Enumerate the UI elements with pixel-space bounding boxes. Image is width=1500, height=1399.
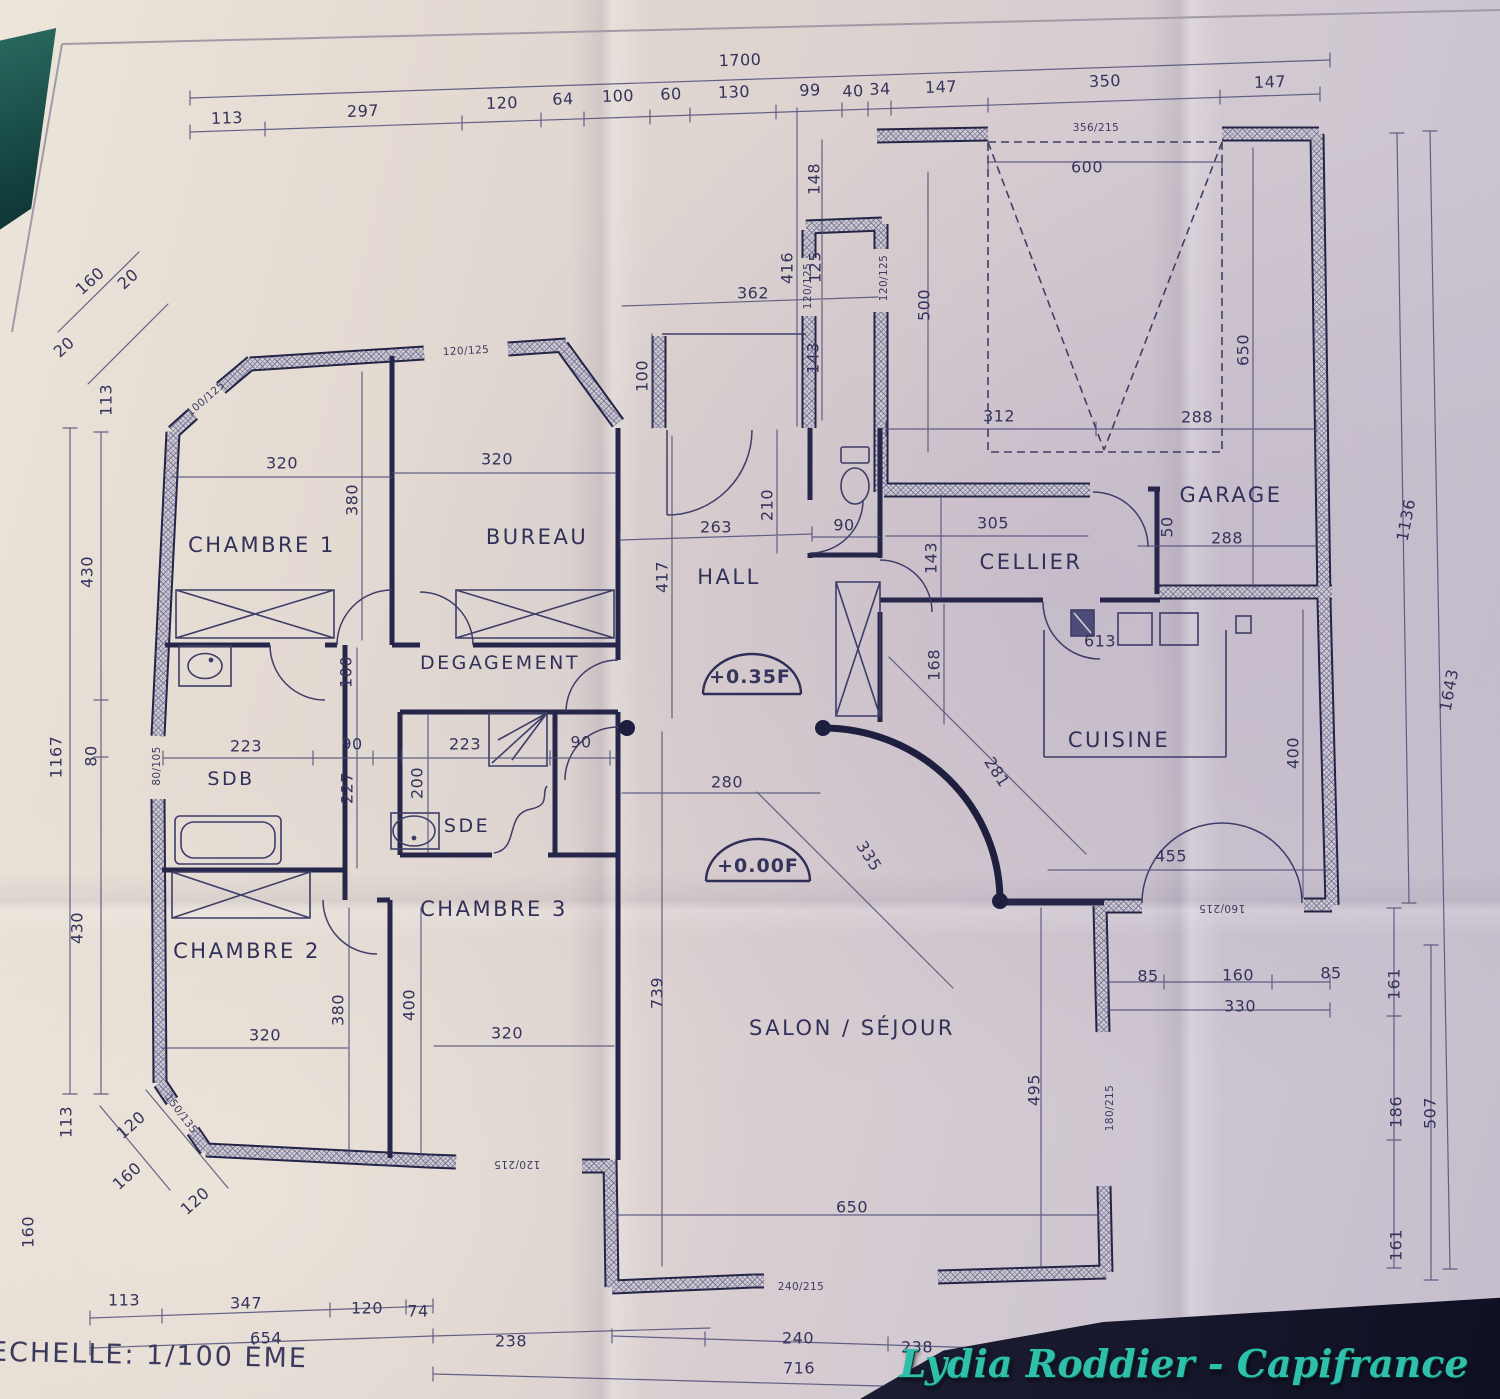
- room-label: SALON / SÉJOUR: [749, 1016, 955, 1040]
- dimension-label: 330: [1224, 997, 1256, 1016]
- dimension-label: 335: [852, 837, 885, 874]
- dimension-label: 455: [1155, 847, 1187, 866]
- wall_label-label: 120/125: [878, 255, 890, 301]
- dimension-label: 400: [1284, 737, 1303, 769]
- dimension-label: 186: [1387, 1096, 1406, 1128]
- dimension-label: 380: [329, 994, 348, 1026]
- dimension-label: 161: [1387, 1229, 1406, 1261]
- dimension-label: 120: [113, 1107, 150, 1143]
- room-label: SDB: [207, 768, 254, 790]
- wall_label-label: 80/105: [151, 746, 163, 785]
- level-label: +0.35F: [709, 666, 791, 688]
- dimension-label: 147: [1254, 72, 1287, 92]
- level-label: +0.00F: [717, 855, 799, 877]
- dimension-label: 161: [1385, 968, 1404, 1000]
- wall_label-label: 180/215: [1104, 1085, 1116, 1131]
- dimension-label: 240: [782, 1329, 814, 1348]
- dimension-label: 416: [778, 252, 797, 284]
- dimension-label: 74: [407, 1302, 428, 1321]
- dimension-label: 1136: [1393, 497, 1420, 543]
- dimension-label: 305: [977, 514, 1009, 533]
- dimension-label: 223: [449, 735, 481, 754]
- dimension-label: 1700: [718, 50, 761, 70]
- dimension-label: 64: [552, 89, 574, 109]
- agent-watermark: Lydia Roddier - Capifrance: [868, 1341, 1500, 1386]
- floor-plan-photo: CHAMBRE 1BUREAUDEGAGEMENTHALLCELLIERGARA…: [0, 0, 1500, 1399]
- dimension-label: 430: [78, 556, 97, 588]
- dimension-label: 716: [783, 1359, 815, 1378]
- dimension-label: 160: [19, 1216, 38, 1248]
- dimension-label: 143: [922, 542, 941, 574]
- dimension-label: 147: [925, 77, 958, 97]
- wall_label-label: 120/125: [802, 263, 814, 309]
- room-label: SDE: [444, 815, 490, 837]
- dimension-label: 90: [570, 733, 591, 752]
- dimension-label: 113: [211, 108, 244, 128]
- dimension-label: 20: [114, 265, 143, 293]
- dimension-label: 600: [1071, 158, 1103, 177]
- wall_label-label: 100/125: [185, 379, 228, 419]
- dimension-label: 85: [1320, 964, 1341, 983]
- dimension-label: 263: [700, 518, 732, 537]
- wall_label-label: 120/125: [443, 344, 490, 358]
- room-label: CELLIER: [980, 550, 1083, 574]
- room-label: CUISINE: [1068, 728, 1170, 752]
- dimension-label: 350: [1089, 71, 1122, 91]
- room-label: CHAMBRE 1: [188, 533, 336, 557]
- dimension-label: 650: [836, 1198, 868, 1217]
- dimension-label: 507: [1421, 1097, 1440, 1129]
- dimension-label: 500: [915, 289, 934, 321]
- dimension-label: 320: [491, 1024, 523, 1043]
- dimension-label: 148: [805, 163, 824, 195]
- room-label: DEGAGEMENT: [420, 652, 580, 674]
- dimension-label: 120: [177, 1183, 214, 1219]
- wall_label-label: 356/215: [1073, 122, 1119, 134]
- dimension-label: 223: [230, 737, 262, 756]
- dimension-label: 100: [602, 86, 635, 106]
- dimension-label: 160: [109, 1158, 146, 1194]
- dimension-label: 20: [50, 333, 79, 361]
- dimension-label: 650: [1234, 334, 1253, 366]
- dimension-label: 495: [1025, 1074, 1044, 1106]
- dimension-label: 200: [408, 767, 427, 799]
- dimension-label: 1167: [47, 736, 66, 779]
- dimension-label: 120: [351, 1299, 383, 1318]
- dimension-label: 99: [799, 80, 821, 100]
- dimension-label: 380: [343, 484, 362, 516]
- dimension-label: 50: [1158, 516, 1177, 537]
- dimension-label: 417: [653, 561, 672, 593]
- room-label: HALL: [697, 565, 761, 589]
- dimension-label: 613: [1084, 632, 1116, 651]
- room-label: CHAMBRE 3: [420, 897, 568, 921]
- dimension-label: 160: [1222, 966, 1254, 985]
- dimension-label: 160: [72, 263, 109, 299]
- dimension-label: 90: [341, 735, 362, 754]
- dimension-label: 400: [400, 989, 419, 1021]
- dimension-label: 288: [1181, 408, 1213, 427]
- wall_label-label: 120/215: [494, 1158, 540, 1170]
- dimension-label: 120: [486, 93, 519, 113]
- dimension-label: 113: [97, 384, 116, 416]
- dimension-label: 130: [718, 82, 751, 102]
- dimension-label: 320: [481, 450, 513, 469]
- dimension-label: 210: [758, 489, 777, 521]
- dimension-label: 430: [68, 912, 87, 944]
- dimension-label: 312: [983, 407, 1015, 426]
- labels-overlay: CHAMBRE 1BUREAUDEGAGEMENTHALLCELLIERGARA…: [0, 0, 1500, 1399]
- dimension-label: 85: [1137, 967, 1158, 986]
- dimension-label: 40: [842, 81, 864, 101]
- dimension-label: 143: [804, 342, 823, 374]
- wall_label-label: 240/215: [778, 1281, 824, 1293]
- dimension-label: 288: [1211, 529, 1243, 548]
- dimension-label: 80: [82, 745, 101, 766]
- dimension-label: 34: [869, 79, 891, 99]
- dimension-label: 297: [347, 101, 380, 121]
- dimension-label: 320: [249, 1026, 281, 1045]
- dimension-label: 168: [925, 649, 944, 681]
- dimension-label: 90: [833, 516, 854, 535]
- wall_label-label: 150/135: [162, 1092, 200, 1136]
- dimension-label: 100: [337, 656, 356, 688]
- dimension-label: 1643: [1436, 667, 1463, 713]
- wall_label-label: 160/215: [1199, 902, 1245, 914]
- dimension-label: 280: [711, 773, 743, 792]
- dimension-label: 347: [230, 1294, 262, 1313]
- scale-text: ECHELLE: 1/100 ÈME: [0, 1337, 308, 1375]
- room-label: GARAGE: [1180, 483, 1283, 507]
- dimension-label: 113: [108, 1291, 140, 1310]
- dimension-label: 60: [660, 84, 682, 104]
- dimension-label: 113: [57, 1106, 76, 1138]
- dimension-label: 100: [633, 360, 652, 392]
- dimension-label: 362: [737, 284, 769, 303]
- room-label: CHAMBRE 2: [173, 939, 321, 963]
- dimension-label: 281: [980, 753, 1013, 790]
- dimension-label: 320: [266, 454, 298, 473]
- dimension-label: 238: [495, 1332, 527, 1351]
- dimension-label: 227: [338, 772, 357, 804]
- room-label: BUREAU: [486, 525, 588, 549]
- dimension-label: 739: [648, 977, 667, 1009]
